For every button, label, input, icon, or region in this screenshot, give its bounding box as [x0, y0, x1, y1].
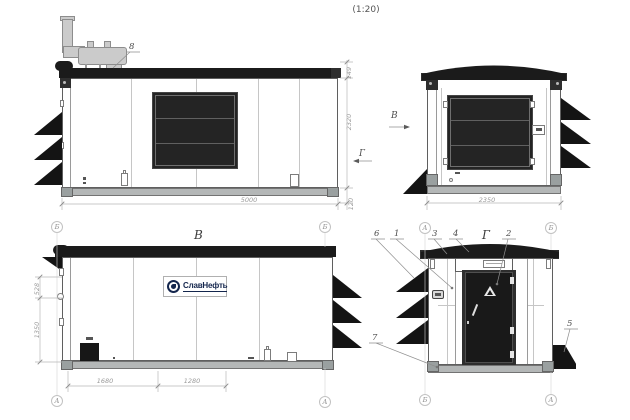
linework-overlay — [0, 0, 630, 420]
drawing-sheet: (1:20) — [0, 0, 630, 420]
front-arched-roof — [421, 244, 559, 258]
view-arrowheads — [353, 125, 410, 163]
leader-lines — [113, 52, 578, 367]
rear-arched-roof — [422, 66, 566, 81]
dimension-ticks — [38, 60, 564, 389]
dimension-lines — [35, 60, 561, 392]
leader-dots — [436, 283, 499, 369]
